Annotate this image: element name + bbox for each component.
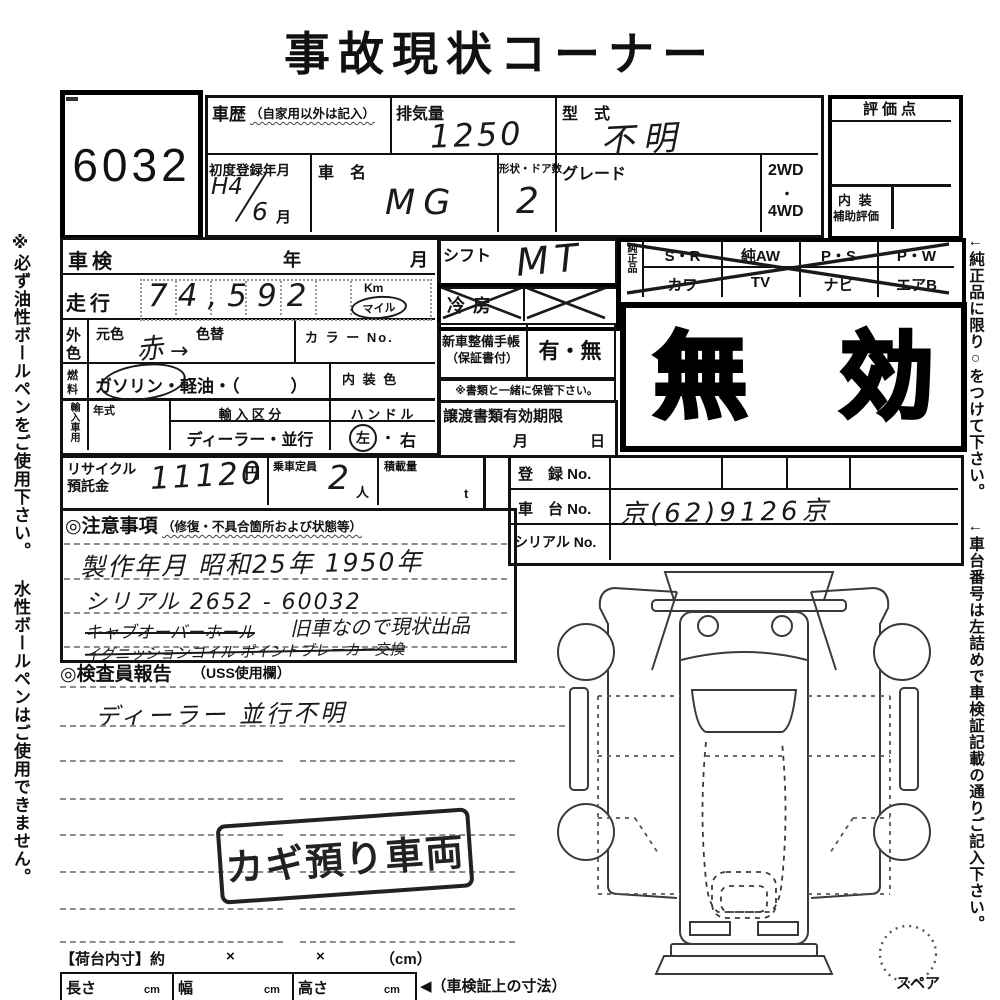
dashed-line: [60, 941, 283, 943]
cargo-x1: ×: [226, 948, 235, 965]
transfer-day: 日: [590, 430, 605, 451]
handle-label: ハ ン ド ル: [331, 404, 433, 423]
booklet-label-2: （保証書付）: [446, 349, 518, 366]
cargo-arrow-note: ◀（車検証上の寸法）: [420, 975, 567, 996]
serial-no-label: シリアル No.: [514, 532, 596, 552]
cargo-label: 【荷台内寸】約: [60, 948, 165, 969]
interior-label: 内 装: [838, 190, 874, 209]
notes-line3-struck: キャブオーバーホール: [85, 618, 255, 643]
keep-note: ※書類と一緒に保管下さい。: [455, 382, 598, 398]
invalid-stamp-box: 無 効: [620, 302, 967, 452]
car-name-label: 車 名: [318, 159, 366, 183]
left-sidebar-note: ※必ず油性ボールペンをご使用下さい。 水性ボールペンはご使用できません。: [8, 233, 33, 808]
divider-line: [721, 455, 723, 488]
color-no-label: カ ラ ー No.: [305, 327, 394, 346]
import-class-value: ディーラー・並行: [170, 426, 330, 450]
keep-note-box: ※書類と一緒に保管下さい。: [437, 377, 616, 402]
page-title: 事故現状コーナー: [0, 18, 1000, 84]
divider-line: [609, 455, 611, 560]
mileage-label: 走行: [66, 287, 114, 316]
shaken-label: 車検: [68, 245, 116, 274]
booklet-label-1: 新車整備手帳: [442, 331, 520, 350]
transfer-label: 譲渡書類有効期限: [443, 405, 563, 426]
handle-dot: ・: [381, 428, 395, 448]
handle-left-circled: 左: [349, 424, 377, 452]
width-label: 幅: [178, 977, 193, 998]
dashed-line: [300, 908, 515, 910]
length-unit: cm: [144, 984, 160, 996]
divider-line: [172, 972, 174, 1000]
cargo-table: [60, 972, 417, 1000]
load-label: 積載量: [384, 458, 417, 474]
cargo-cm-note: （cm）: [380, 948, 432, 969]
model-value: 不明: [599, 110, 685, 163]
divider-line: [830, 120, 951, 122]
shaken-month-label: 月: [410, 246, 428, 272]
orig-color-label: 元色: [96, 324, 124, 344]
reg-no-label: 登 録 No.: [518, 463, 591, 484]
divider-line: [310, 155, 312, 232]
capacity-label: 乗車定員: [273, 458, 317, 474]
divider-line: [60, 273, 435, 275]
first-reg-month-unit: 月: [276, 206, 291, 227]
first-reg-era: H4: [211, 174, 243, 200]
divider-line: [891, 184, 894, 229]
import-label: 輸入車用: [66, 402, 81, 448]
dashed-line: [300, 798, 515, 800]
year-model-label: 年式: [93, 402, 115, 418]
invalid-stamp-char2: 効: [840, 330, 934, 424]
car-name-value: MG: [385, 183, 458, 223]
divider-line: [555, 95, 557, 155]
width-unit: cm: [264, 984, 280, 996]
wd-dot: ・: [780, 184, 794, 204]
dashed-line: [60, 725, 565, 727]
recycle-label-2: 預託金: [67, 476, 109, 496]
divider-line: [760, 155, 762, 232]
load-unit: t: [464, 486, 468, 501]
invalid-stamp-char1: 無: [653, 330, 747, 424]
divider-line: [849, 455, 851, 488]
divider-line: [508, 488, 958, 490]
lot-number: 6032: [60, 90, 203, 240]
capacity-unit: 人: [356, 482, 369, 501]
recolor-label: 色替: [196, 324, 224, 344]
shape-doors-label: 形状・ドア数: [499, 161, 562, 176]
divider-line: [205, 153, 818, 155]
genuine-cross-mark: [617, 238, 958, 299]
displacement-value: 1250: [429, 114, 524, 155]
divider-line: [390, 95, 392, 155]
grade-label: グレード: [562, 160, 626, 184]
handle-right-label: 右: [400, 427, 416, 451]
notes-line3-rest: 旧車なので現状出品: [290, 609, 470, 641]
shift-value: MT: [514, 235, 586, 285]
mile-unit-label: マイル: [362, 298, 396, 316]
divider-line: [294, 320, 296, 364]
divider-line: [267, 455, 269, 505]
km-unit-label: Km: [364, 281, 383, 295]
dashed-line: [60, 686, 565, 688]
color-value: 赤: [134, 326, 165, 368]
4wd-label: 4WD: [768, 203, 804, 221]
dashed-line: [60, 760, 283, 762]
notes-heading-note: （修復・不具合箇所および状態等）: [162, 516, 362, 535]
notes-line1: 製作年月 昭和25年 1950年: [80, 542, 424, 584]
dashed-line: [300, 760, 515, 762]
score-label: 評価点: [828, 98, 955, 119]
key-deposit-stamp-text: カギ預り車両: [223, 820, 466, 892]
notes-heading: ◎注意事項: [65, 511, 158, 538]
divider-line: [292, 972, 294, 1000]
shaken-year-label: 年: [283, 246, 301, 272]
divider-line: [377, 455, 379, 505]
height-unit: cm: [384, 984, 400, 996]
shift-label: シフト: [443, 242, 491, 266]
vehicle-diagram: [540, 558, 965, 988]
handle-left-label: 左: [356, 428, 370, 448]
shape-doors-value: 2: [516, 181, 539, 222]
right-sidebar-note: ←純正品に限り○をつけて下さい。 ←車台番号は左詰めで車検証記載の通りご記入下さ…: [964, 233, 986, 878]
length-label: 長さ: [66, 977, 96, 998]
chassis-no-value: 京(62)9126京: [620, 490, 832, 531]
divider-line: [60, 362, 435, 364]
yen-unit: 円: [245, 462, 260, 483]
key-deposit-stamp: カギ預り車両: [216, 807, 475, 905]
ext-color-label-2: 色: [66, 342, 81, 363]
import-class-label: 輸 入 区 分: [170, 404, 330, 423]
2wd-label: 2WD: [768, 162, 804, 180]
first-reg-month-value: 6: [252, 197, 268, 226]
mileage-value: 74,592: [148, 278, 316, 314]
dashed-line: [300, 941, 515, 943]
color-arrow: →: [170, 339, 188, 364]
fuel-label-2: 料: [67, 381, 78, 397]
auction-sheet: 事故現状コーナー 6032 車歴 （自家用以外は記入） 排気量 1250 型 式…: [0, 0, 1000, 1000]
dashed-line: [60, 798, 283, 800]
ac-cross-mark: [437, 283, 612, 323]
chassis-no-label: 車 台 No.: [518, 498, 591, 519]
cargo-x2: ×: [316, 948, 325, 965]
inspection-block-frame: [60, 237, 441, 456]
dashed-line: [60, 908, 283, 910]
interior-sub-label: 補助評価: [833, 208, 879, 224]
int-color-label: 内 装 色: [342, 369, 398, 388]
booklet-value: 有・無: [528, 323, 612, 377]
divider-line: [786, 455, 788, 488]
height-label: 高さ: [298, 977, 328, 998]
history-note: （自家用以外は記入）: [250, 103, 375, 122]
inspector-heading: ◎検査員報告: [60, 659, 172, 686]
transfer-month: 月: [513, 430, 528, 451]
inspector-heading-note: （USS使用欄）: [192, 663, 291, 683]
divider-line: [87, 320, 89, 450]
history-label: 車歴: [212, 100, 246, 125]
spare-tire-label: スペア: [896, 972, 940, 993]
capacity-value: 2: [328, 458, 349, 497]
